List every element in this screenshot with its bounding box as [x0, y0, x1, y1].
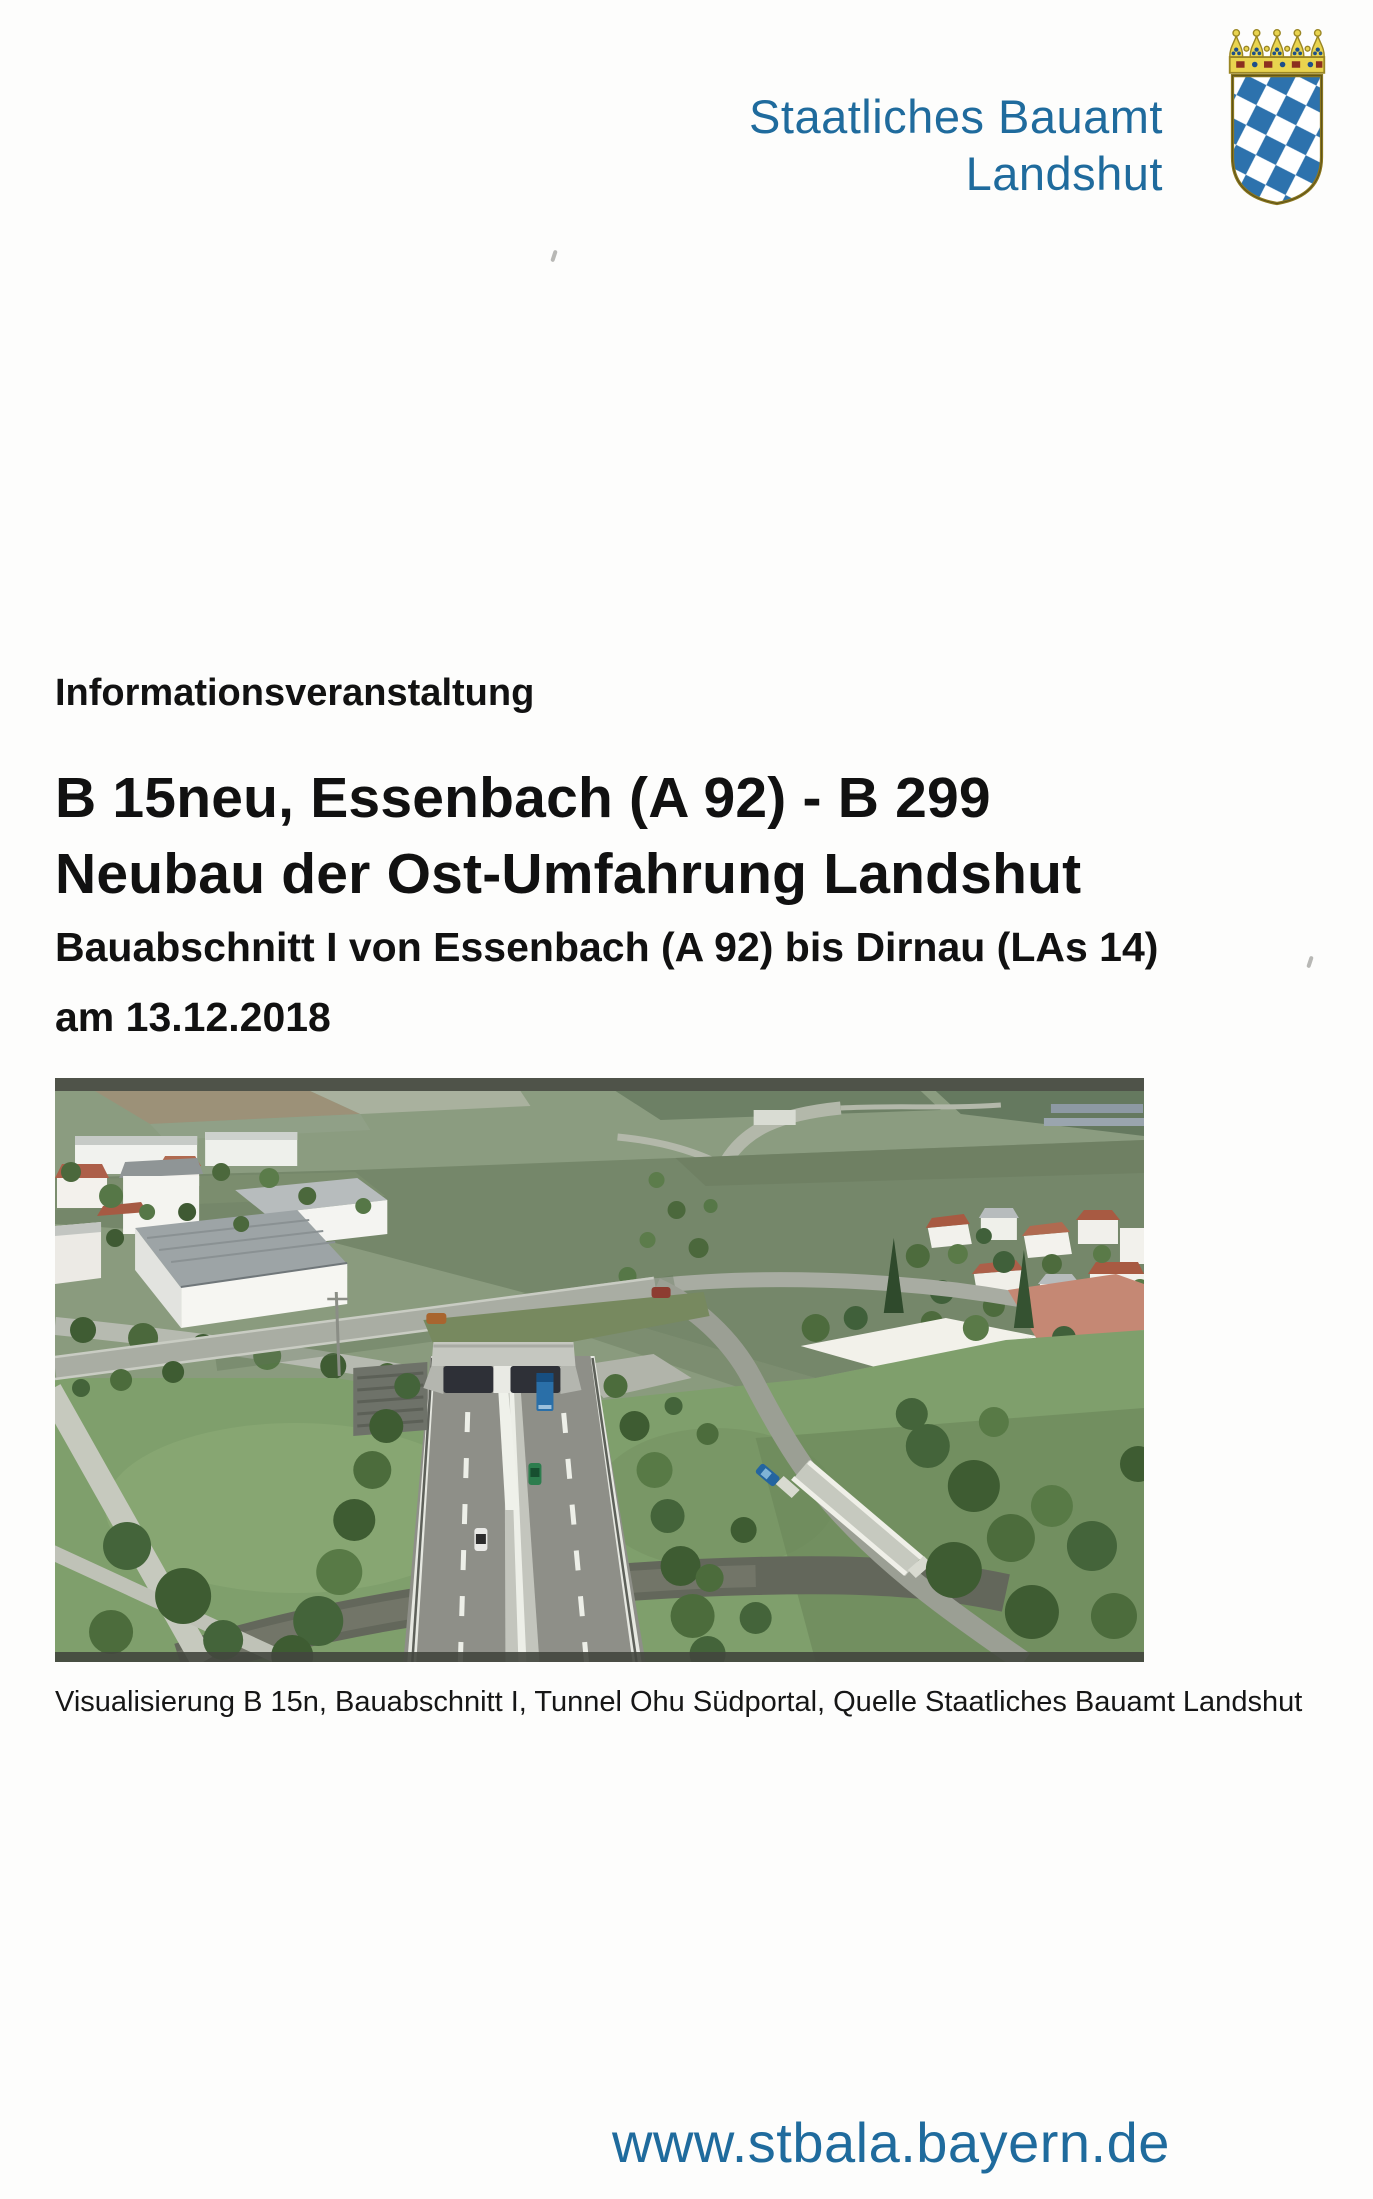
agency-name: Staatliches Bauamt Landshut — [749, 88, 1163, 202]
figure-caption: Visualisierung B 15n, Bauabschnitt I, Tu… — [55, 1686, 1144, 1719]
visualization-figure: Visualisierung B 15n, Bauabschnitt I, Tu… — [55, 1078, 1144, 1662]
scan-artifact — [550, 250, 558, 263]
tunnel-visualization-image — [55, 1078, 1144, 1662]
subtitle: Bauabschnitt I von Essenbach (A 92) bis … — [55, 924, 1158, 971]
title-line1: B 15neu, Essenbach (A 92) - B 299 — [55, 766, 991, 830]
website-url: www.stbala.bayern.de — [612, 2110, 1170, 2175]
bavarian-coat-of-arms-icon — [1209, 20, 1345, 210]
agency-line1: Staatliches Bauamt — [749, 88, 1163, 145]
title-line2: Neubau der Ost-Umfahrung Landshut — [55, 842, 1081, 906]
agency-line2: Landshut — [749, 145, 1163, 202]
event-type-heading: Informationsveranstaltung — [55, 672, 534, 715]
flyer-page: Staatliches Bauamt Landshut — [0, 0, 1373, 2199]
page-title: B 15neu, Essenbach (A 92) - B 299Neubau … — [55, 760, 1081, 912]
event-date: am 13.12.2018 — [55, 994, 331, 1041]
scan-artifact — [1306, 956, 1314, 969]
